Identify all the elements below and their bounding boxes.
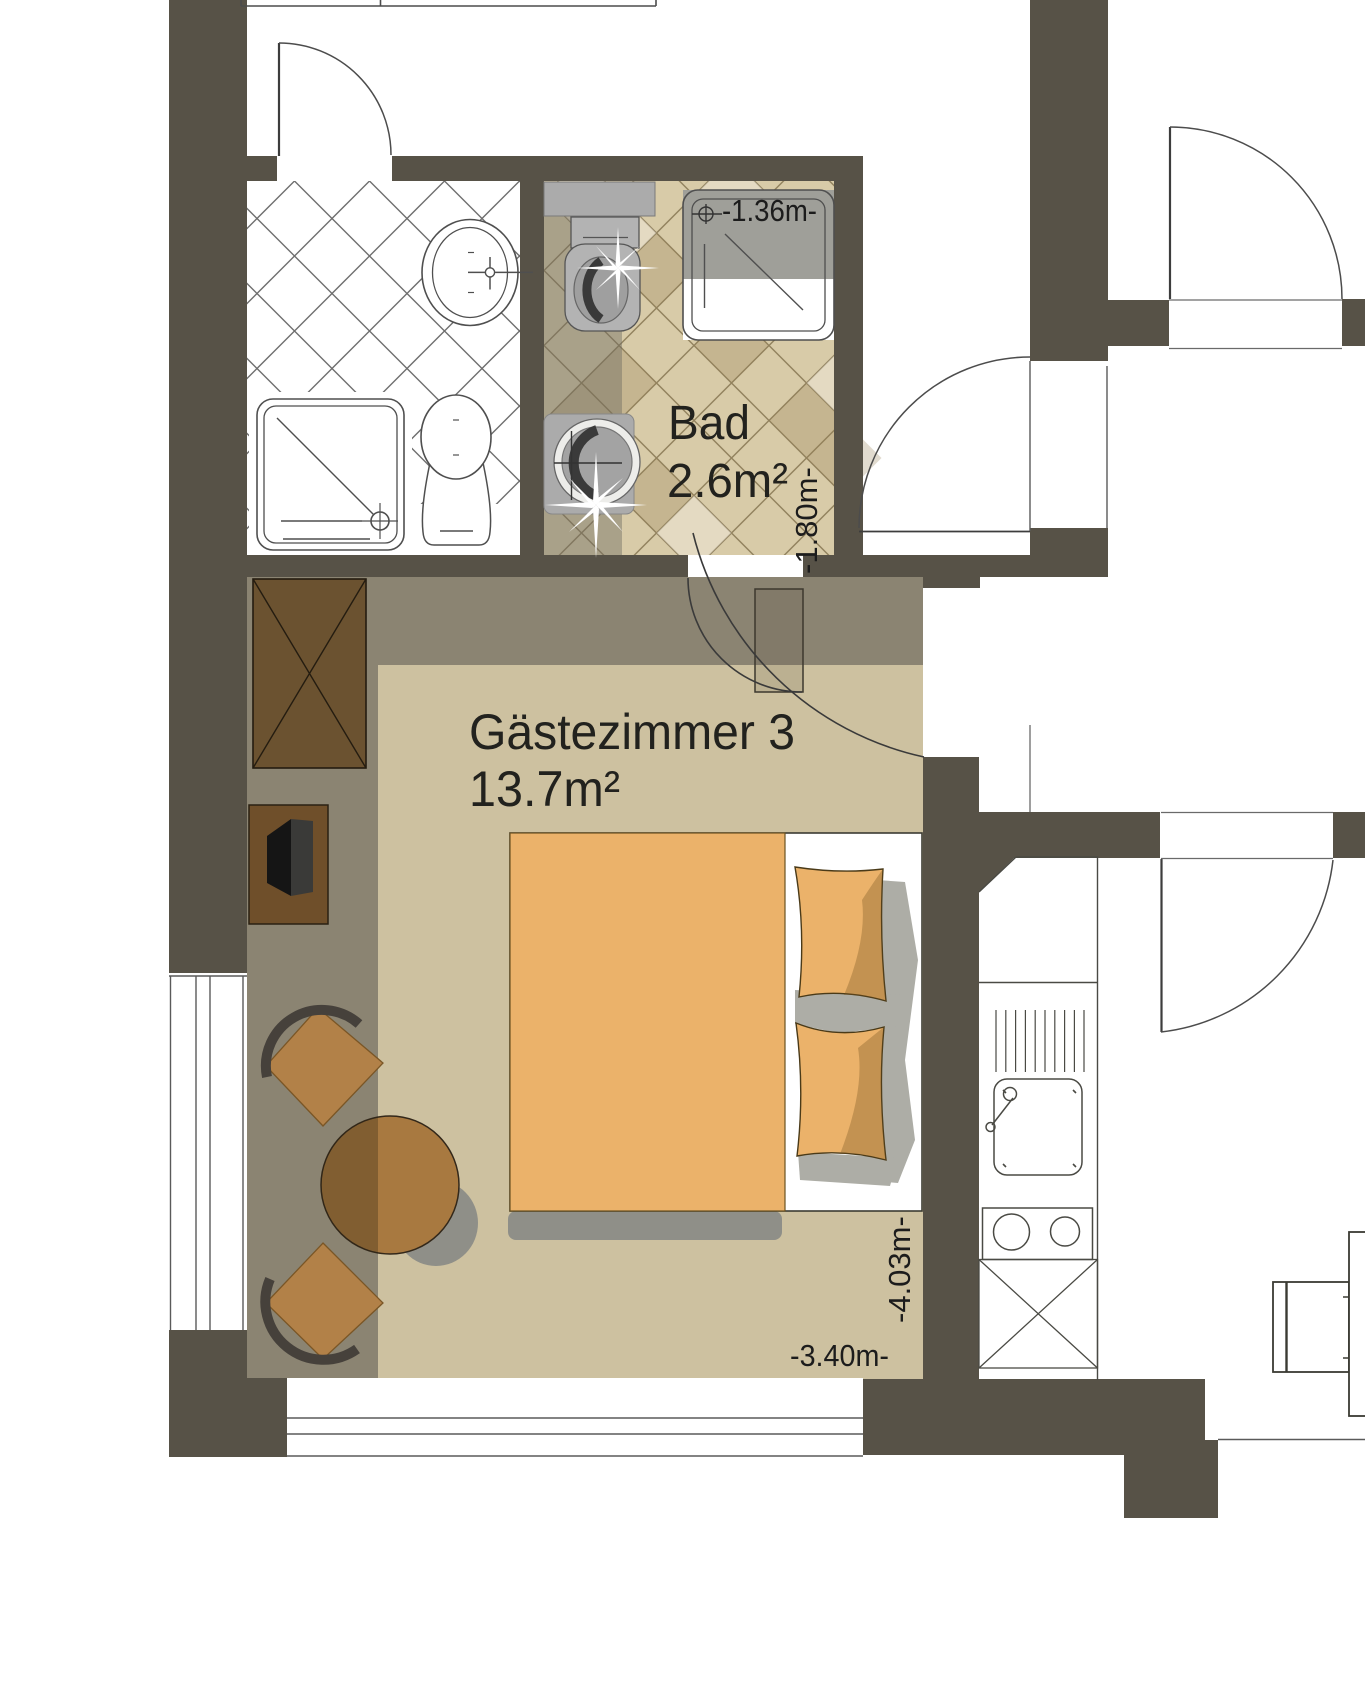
svg-text:-1.80m-: -1.80m- (789, 467, 824, 574)
svg-text:-3.40m-: -3.40m- (790, 1338, 889, 1373)
svg-text:Bad: Bad (668, 397, 750, 450)
svg-text:-4.03m-: -4.03m- (882, 1216, 917, 1323)
svg-text:-1.36m-: -1.36m- (722, 193, 817, 228)
svg-text:13.7m²: 13.7m² (469, 761, 620, 817)
svg-text:2.6m²: 2.6m² (667, 455, 788, 508)
svg-text:Gästezimmer 3: Gästezimmer 3 (469, 704, 795, 760)
